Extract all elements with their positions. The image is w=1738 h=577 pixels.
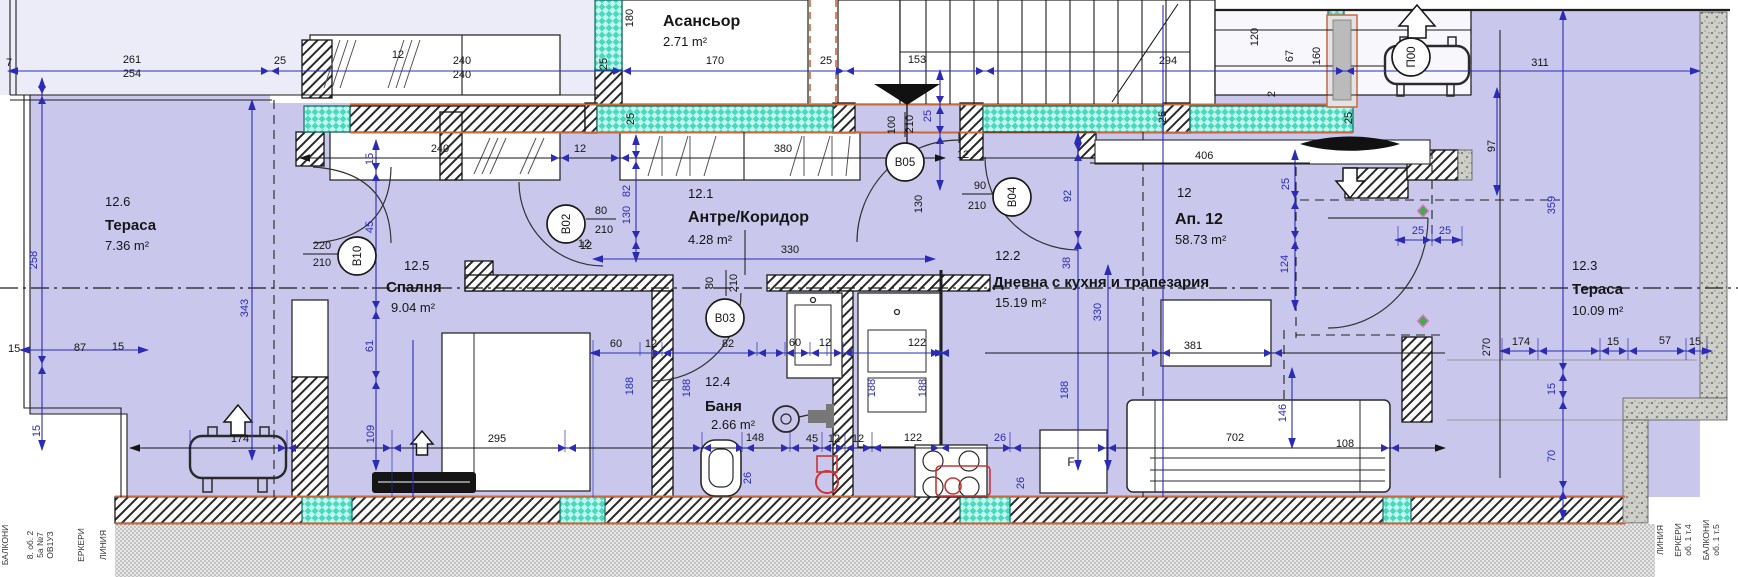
terrace-left-floor-lower xyxy=(127,414,270,497)
room-name: Дневна с кухня и трапезария xyxy=(993,274,1209,291)
dim-label: 210 xyxy=(595,224,613,236)
dim-label: 210 xyxy=(728,274,740,292)
legend-text: ЕРКЕРИ xyxy=(1673,523,1683,557)
dim-label: 258 xyxy=(28,251,40,269)
dim-label: 12 xyxy=(819,337,831,349)
room-area: 10.09 m² xyxy=(1572,303,1624,318)
dim-label: 12 xyxy=(645,338,657,350)
faucet-handle xyxy=(826,404,834,428)
teal-wall xyxy=(983,106,1163,132)
dim-label: 122 xyxy=(908,337,926,349)
dim-label: 26 xyxy=(742,472,754,484)
dim-label: 188 xyxy=(1059,381,1071,399)
room-number: 12.5 xyxy=(404,258,429,273)
dim-label: 146 xyxy=(1277,404,1289,422)
wall xyxy=(652,291,673,497)
dim-label: 174 xyxy=(1512,336,1530,348)
dim-label: 7 xyxy=(6,57,12,69)
door-tag-label: B10 xyxy=(352,246,364,266)
floor-plan-canvas: B10B02B03B05B04П00 726125425240240170251… xyxy=(0,0,1738,577)
dim-label: 25 xyxy=(820,55,832,67)
dim-label: 61 xyxy=(364,340,376,352)
dim-label: 270 xyxy=(1481,338,1493,356)
dim-label: 12 xyxy=(828,433,840,445)
dim-label: 108 xyxy=(1336,438,1354,450)
dim-label: 60 xyxy=(610,338,622,350)
dim-label: 15 xyxy=(364,153,376,165)
room-area: 4.28 m² xyxy=(688,232,733,247)
wall xyxy=(292,377,328,497)
dim-label: 120 xyxy=(1249,28,1261,46)
dim-label: 406 xyxy=(1195,150,1213,162)
dim-label: 92 xyxy=(1062,190,1074,202)
teal-wall xyxy=(1190,106,1353,132)
dim-label: 15 xyxy=(1607,336,1619,348)
wall xyxy=(350,106,585,132)
room-name: Тераса xyxy=(1572,281,1624,298)
stove xyxy=(915,445,987,497)
dim-label: 124 xyxy=(1279,255,1291,273)
door-tag-label: П00 xyxy=(1406,46,1418,67)
dim-label: 210 xyxy=(968,200,986,212)
dim-label: 330 xyxy=(781,244,799,256)
room-area: 2.66 m² xyxy=(711,417,756,432)
room-number: 12.2 xyxy=(995,248,1020,263)
dim-label: 295 xyxy=(488,433,506,445)
dim-label: 254 xyxy=(123,68,141,80)
door-tag-label: B04 xyxy=(1007,186,1019,207)
dim-label: 240 xyxy=(453,55,471,67)
room-area: 7.36 m² xyxy=(105,238,150,253)
dim-label: 80 xyxy=(595,205,607,217)
teal-window xyxy=(302,497,352,523)
dim-label: 25 xyxy=(274,55,286,67)
wall xyxy=(302,40,332,98)
legend-text: БАЛКОНИ xyxy=(1701,520,1711,561)
floor-plan-svg: B10B02B03B05B04П00 726125425240240170251… xyxy=(0,0,1738,577)
dim-label: 130 xyxy=(621,206,633,224)
dim-label: 82 xyxy=(722,338,734,350)
dim-label: 210 xyxy=(313,257,331,269)
dim-label: 702 xyxy=(1226,432,1244,444)
legend-text: об. 1 т.4 xyxy=(1683,524,1693,556)
dim-label: 148 xyxy=(746,432,764,444)
dim-label: 25 xyxy=(922,110,934,122)
wall xyxy=(833,103,855,133)
legend-text: ЕРКЕРИ xyxy=(76,528,86,562)
dim-label: 57 xyxy=(1659,335,1671,347)
legend-text: БАЛКОНИ xyxy=(0,525,10,566)
room-area: 9.04 m² xyxy=(391,300,436,315)
legend-text: 8. об. 2 xyxy=(25,530,35,559)
dim-label: 174 xyxy=(231,433,249,445)
room-name: Баня xyxy=(705,398,742,415)
dim-label: 15 xyxy=(8,343,20,355)
room-number: 12.3 xyxy=(1572,258,1597,273)
terrace-right-floor xyxy=(1471,10,1700,497)
teal-wall xyxy=(304,106,350,132)
parapet xyxy=(1458,150,1472,180)
bed xyxy=(442,333,590,491)
wardrobe-column xyxy=(292,300,328,377)
dim-label: 25 xyxy=(1439,225,1451,237)
dim-label: 97 xyxy=(1486,140,1498,152)
room-area: 2.71 m² xyxy=(663,34,708,49)
dim-label: 122 xyxy=(904,432,922,444)
parapet xyxy=(1623,420,1648,523)
room-name: Ап. 12 xyxy=(1175,211,1223,228)
room-number: 12.4 xyxy=(705,374,730,389)
dim-label: 12 xyxy=(580,240,592,252)
wall xyxy=(595,68,622,105)
wall xyxy=(585,103,597,133)
dim-label: 70 xyxy=(1546,450,1558,462)
room-area: 58.73 m² xyxy=(1175,232,1227,247)
dim-label: 240 xyxy=(453,69,471,81)
dim-label: 12 xyxy=(392,49,404,61)
dim-label: 25 xyxy=(598,58,610,70)
teal-window xyxy=(560,497,605,523)
dim-label: 15 xyxy=(1689,336,1701,348)
faucet xyxy=(808,410,826,423)
door-tag-label: B02 xyxy=(561,214,573,234)
dim-label: 15 xyxy=(31,425,43,437)
legend-text: об. 1 т.5 xyxy=(1711,524,1721,556)
room-name: Асансьор xyxy=(663,13,741,30)
room-name: Спалня xyxy=(386,279,442,296)
dim-label: 25 xyxy=(1157,111,1169,123)
dim-label: 180 xyxy=(624,9,636,27)
room-name: Антре/Коридор xyxy=(688,209,809,226)
dim-label: 90 xyxy=(974,180,986,192)
room-number: 12 xyxy=(1177,185,1191,200)
dim-label: F xyxy=(1067,455,1074,469)
dim-label: 188 xyxy=(624,377,636,395)
dim-label: 153 xyxy=(908,54,926,66)
dim-label: 15 xyxy=(1546,383,1558,395)
dim-label: 25 xyxy=(1280,178,1292,190)
dim-label: 12 xyxy=(852,433,864,445)
parapet xyxy=(1623,398,1727,420)
dim-label: 12 xyxy=(574,143,586,155)
dim-label: 261 xyxy=(123,54,141,66)
dim-label: 109 xyxy=(365,425,377,443)
dim-label: 26 xyxy=(994,432,1006,444)
kitchen-counter xyxy=(858,293,940,447)
terrace-left-floor xyxy=(30,95,270,414)
dim-label: 87 xyxy=(74,342,86,354)
dim-label: 381 xyxy=(1184,340,1202,352)
room-name: Тераса xyxy=(105,217,157,234)
dim-label: 45 xyxy=(806,433,818,445)
door-tag-label: B05 xyxy=(895,157,915,169)
dim-label: 60 xyxy=(789,337,801,349)
teal-window xyxy=(1383,497,1411,523)
dim-label: 359 xyxy=(1546,196,1558,214)
wall xyxy=(296,132,324,166)
dim-label: 343 xyxy=(239,299,251,317)
dim-label: 82 xyxy=(621,185,633,197)
ground-halftone xyxy=(115,524,1655,577)
wall xyxy=(1402,337,1432,422)
legend-text: ОВ1УЗ xyxy=(45,531,55,558)
dim-label: 188 xyxy=(681,379,693,397)
dim-label: 220 xyxy=(313,240,331,252)
room-area: 15.19 m² xyxy=(995,295,1047,310)
dim-label: 380 xyxy=(774,143,792,155)
room-number: 12.6 xyxy=(105,194,130,209)
room-number: 12.1 xyxy=(688,186,713,201)
dim-label: 12 xyxy=(957,149,969,161)
dim-label: 160 xyxy=(1311,47,1323,65)
dim-label: 210 xyxy=(904,115,916,133)
dim-label: 15 xyxy=(112,341,124,353)
shaft-inner xyxy=(1333,20,1351,100)
dim-label: 170 xyxy=(706,55,724,67)
teal-window xyxy=(960,497,1010,523)
parapet xyxy=(1700,12,1727,398)
dim-label: 330 xyxy=(1092,303,1104,321)
dining-table xyxy=(1161,300,1271,366)
dim-label: 2 xyxy=(1266,91,1278,97)
dim-label: 67 xyxy=(1284,50,1296,62)
legend-text: 5а №7 xyxy=(35,532,45,558)
dim-label: 240 xyxy=(431,143,449,155)
dim-label: 188 xyxy=(866,379,878,397)
dim-label: 25 xyxy=(625,113,637,125)
dim-label: 100 xyxy=(886,116,898,134)
legend-text: ЛИНИЯ xyxy=(1655,525,1665,555)
dim-label: 25 xyxy=(1412,225,1424,237)
dim-label: 80 xyxy=(704,277,716,289)
door-tag-label: B03 xyxy=(715,313,735,325)
dim-label: 188 xyxy=(917,379,929,397)
dim-label: 45 xyxy=(364,221,376,233)
dim-label: 294 xyxy=(1159,55,1177,67)
dim-label: 38 xyxy=(1061,257,1073,269)
dim-label: 311 xyxy=(1531,57,1549,69)
dim-label: 25 xyxy=(1343,112,1355,124)
dim-label: 130 xyxy=(913,195,925,213)
legend-text: ЛИНИЯ xyxy=(98,530,108,560)
dim-label: 26 xyxy=(1015,477,1027,489)
